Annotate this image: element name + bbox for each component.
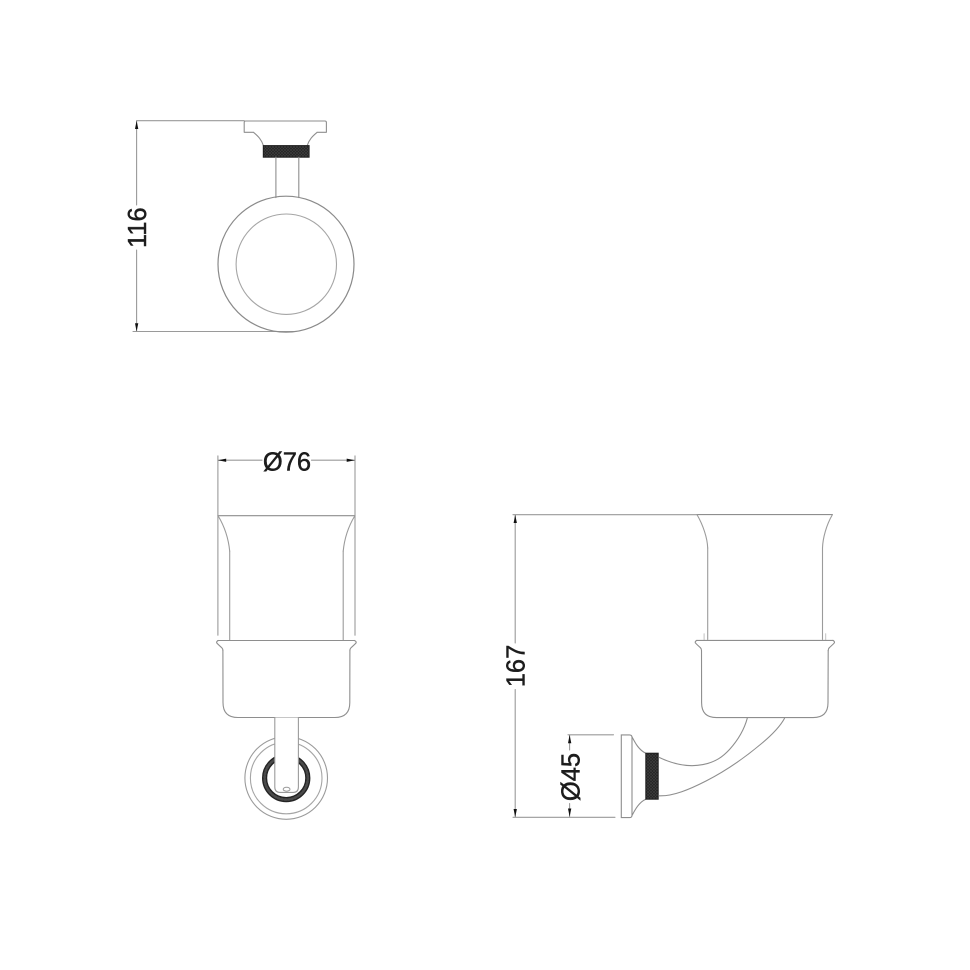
svg-text:Ø76: Ø76	[263, 449, 311, 477]
svg-text:Ø45: Ø45	[558, 753, 586, 801]
svg-text:116: 116	[124, 207, 152, 248]
svg-text:167: 167	[502, 645, 530, 688]
